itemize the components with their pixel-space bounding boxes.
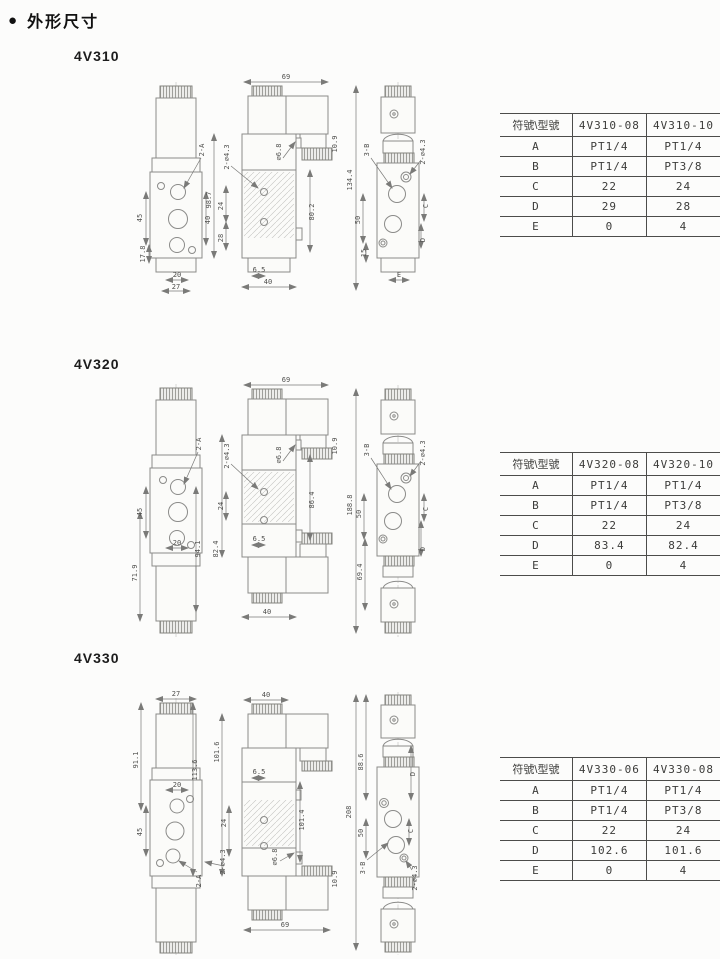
dim-label: 28 — [217, 234, 225, 242]
dim-label: 69 — [281, 921, 289, 929]
drawing-4v330-front-view: 27 91.1 45 20 113.6 2-A — [132, 690, 203, 955]
spec-cell: 22 — [572, 821, 646, 841]
spec-cell: 4 — [646, 217, 720, 237]
hole-label: 2-∅4.3 — [419, 139, 427, 164]
dim-label: 50 — [354, 216, 362, 224]
hole-label: 2-∅4.3 — [411, 865, 419, 890]
table-row: C2224 — [500, 177, 720, 197]
table-row: D83.482.4 — [500, 536, 720, 556]
dim-label: 6.5 — [253, 535, 266, 543]
dim-label: 113.6 — [191, 759, 199, 780]
spec-cell: 22 — [572, 516, 646, 536]
dim-label: 45 — [136, 214, 144, 222]
dim-label: 6.5 — [253, 768, 266, 776]
port-label: 3-B — [363, 444, 371, 457]
table-row: E04 — [500, 556, 720, 576]
dim-label: 101.4 — [298, 809, 306, 830]
dim-label: 6.5 — [253, 266, 266, 274]
spec-cell: 29 — [572, 197, 646, 217]
dim-label: 24 — [220, 819, 228, 827]
dim-label: 69.4 — [356, 564, 364, 581]
table-row: E04 — [500, 861, 720, 881]
catalog-page: ● 外形尺寸 4V310 4V320 4V330 — [0, 0, 720, 959]
drawing-4v330-side-view: 40 101.6 24 2-∅4.3 6.5 101.4 ∅6.8 10.9 6… — [205, 691, 339, 930]
spec-col-header: 4V320-10 — [646, 453, 720, 476]
spec-col-header: 4V330-06 — [572, 758, 646, 781]
dim-label: 50 — [355, 510, 363, 518]
dim-label: D — [419, 547, 427, 551]
spec-cell: E — [500, 217, 572, 237]
spec-cell: A — [500, 137, 572, 157]
dim-label: 24 — [217, 502, 225, 510]
hole-label: 2-∅4.3 — [419, 440, 427, 465]
spec-col-header: 4V310-10 — [646, 114, 720, 137]
drawing-4v310-front-din-view: 134.4 3-B 2-∅4.3 50 15 C D E — [346, 82, 430, 290]
spec-cell: 28 — [646, 197, 720, 217]
spec-table-4v330: 符號\型號 4V330-06 4V330-08 APT1/4PT1/4 BPT1… — [500, 757, 720, 881]
drawing-4v310-side-view: 69 2-∅4.3 98.7 24 28 ∅6.8 10.9 80.2 6.5 … — [205, 73, 339, 287]
dim-label: 24 — [217, 202, 225, 210]
spec-cell: 0 — [572, 556, 646, 576]
dim-label: 40 — [262, 691, 270, 699]
spec-cell: PT3/8 — [646, 801, 720, 821]
dim-label: 10.9 — [331, 871, 339, 888]
table-header-row: 符號\型號 4V330-06 4V330-08 — [500, 758, 720, 781]
spec-cell: PT3/8 — [646, 157, 720, 177]
dim-label: 10.9 — [331, 438, 339, 455]
dim-label: 20 — [173, 539, 181, 547]
spec-cell: 0 — [572, 861, 646, 881]
dim-label: ∅6.8 — [275, 447, 283, 464]
dim-label: 27 — [172, 690, 180, 698]
spec-cell: C — [500, 516, 572, 536]
spec-cell: PT1/4 — [646, 476, 720, 496]
port-label: 3-B — [363, 144, 371, 157]
dim-label: 71.9 — [131, 565, 139, 582]
spec-cell: B — [500, 496, 572, 516]
spec-cell: PT1/4 — [646, 137, 720, 157]
spec-col-header: 符號\型號 — [500, 758, 572, 781]
table-header-row: 符號\型號 4V310-08 4V310-10 — [500, 114, 720, 137]
spec-cell: PT1/4 — [572, 781, 646, 801]
spec-table-4v320: 符號\型號 4V320-08 4V320-10 APT1/4PT1/4 BPT1… — [500, 452, 720, 576]
spec-cell: PT1/4 — [572, 801, 646, 821]
spec-cell: 83.4 — [572, 536, 646, 556]
spec-cell: 4 — [646, 556, 720, 576]
spec-cell: A — [500, 781, 572, 801]
spec-col-header: 符號\型號 — [500, 453, 572, 476]
dim-label: ∅6.8 — [271, 849, 279, 866]
dim-label: 94.1 — [194, 541, 202, 558]
spec-col-header: 符號\型號 — [500, 114, 572, 137]
dim-label: 17.8 — [139, 246, 147, 263]
dim-label: C — [422, 507, 430, 511]
table-row: D2928 — [500, 197, 720, 217]
dim-label: 88.6 — [357, 754, 365, 771]
dim-label: 10.9 — [331, 136, 339, 153]
dim-label: 208 — [345, 806, 353, 819]
spec-cell: 24 — [646, 821, 720, 841]
table-row: BPT1/4PT3/8 — [500, 801, 720, 821]
spec-table-4v310: 符號\型號 4V310-08 4V310-10 APT1/4PT1/4 BPT1… — [500, 113, 720, 237]
spec-cell: 0 — [572, 217, 646, 237]
dim-label: D — [419, 238, 427, 242]
port-label: 2-A — [198, 143, 206, 156]
table-row: APT1/4PT1/4 — [500, 781, 720, 801]
dim-label: 45 — [136, 508, 144, 516]
spec-cell: D — [500, 841, 572, 861]
dim-label: 134.4 — [346, 169, 354, 190]
table-row: E04 — [500, 217, 720, 237]
dim-label: 80.2 — [308, 204, 316, 221]
dim-label: E — [397, 271, 401, 279]
dim-label: 86.4 — [308, 492, 316, 509]
spec-cell: 102.6 — [572, 841, 646, 861]
dim-label: 188.8 — [346, 494, 354, 515]
table-row: APT1/4PT1/4 — [500, 476, 720, 496]
spec-cell: PT1/4 — [646, 781, 720, 801]
spec-cell: PT1/4 — [572, 157, 646, 177]
spec-cell: PT3/8 — [646, 496, 720, 516]
dim-label: C — [407, 829, 415, 833]
dim-label: 45 — [136, 828, 144, 836]
spec-cell: C — [500, 177, 572, 197]
table-row: C2224 — [500, 821, 720, 841]
spec-cell: 22 — [572, 177, 646, 197]
spec-cell: B — [500, 157, 572, 177]
dim-label: 20 — [173, 781, 181, 789]
hole-label: 2-∅4.3 — [223, 144, 231, 169]
table-row: C2224 — [500, 516, 720, 536]
spec-cell: C — [500, 821, 572, 841]
spec-cell: 24 — [646, 177, 720, 197]
spec-cell: D — [500, 536, 572, 556]
spec-cell: A — [500, 476, 572, 496]
dim-label: D — [409, 772, 417, 776]
spec-cell: PT1/4 — [572, 476, 646, 496]
dim-label: 40 — [204, 216, 212, 224]
dim-label: 40 — [263, 608, 271, 616]
dim-label: 69 — [282, 73, 290, 81]
port-label: 2-A — [195, 874, 203, 887]
spec-col-header: 4V310-08 — [572, 114, 646, 137]
dim-label: 40 — [264, 278, 272, 286]
spec-cell: PT1/4 — [572, 496, 646, 516]
drawing-4v330-front-din-view: 208 88.6 50 D C 3-B 2-∅4.3 — [345, 692, 419, 955]
spec-cell: B — [500, 801, 572, 821]
spec-cell: 24 — [646, 516, 720, 536]
dim-label: 27 — [172, 283, 180, 291]
drawing-4v310-front-view: 45 17.8 20 27 40 2-A — [136, 82, 212, 291]
spec-cell: 82.4 — [646, 536, 720, 556]
dim-label: 69 — [282, 376, 290, 384]
dim-label: C — [422, 204, 430, 208]
dim-label: ∅6.8 — [275, 144, 283, 161]
drawing-4v320-front-din-view: 188.8 3-B 2-∅4.3 50 69.4 C D — [346, 385, 430, 637]
table-row: BPT1/4PT3/8 — [500, 496, 720, 516]
spec-cell: D — [500, 197, 572, 217]
spec-cell: PT1/4 — [572, 137, 646, 157]
dim-label: 50 — [357, 829, 365, 837]
dim-label: 98.7 — [205, 192, 213, 209]
port-label: 2-A — [195, 437, 203, 450]
port-label: 3-B — [359, 862, 367, 875]
hole-label: 2-∅4.3 — [223, 443, 231, 468]
spec-col-header: 4V320-08 — [572, 453, 646, 476]
spec-cell: 101.6 — [646, 841, 720, 861]
dim-label: 15 — [360, 249, 368, 257]
spec-cell: E — [500, 556, 572, 576]
table-row: APT1/4PT1/4 — [500, 137, 720, 157]
dim-label: 101.6 — [213, 741, 221, 762]
dim-label: 91.1 — [132, 752, 140, 769]
spec-col-header: 4V330-08 — [646, 758, 720, 781]
table-row: D102.6101.6 — [500, 841, 720, 861]
spec-cell: E — [500, 861, 572, 881]
dim-label: 82.4 — [212, 541, 220, 558]
drawing-4v320-front-view: 45 71.9 20 94.1 2-A — [131, 384, 203, 637]
table-header-row: 符號\型號 4V320-08 4V320-10 — [500, 453, 720, 476]
hole-label: 2-∅4.3 — [219, 849, 227, 874]
drawing-4v320-side-view: 69 2-∅4.3 24 82.4 ∅6.8 10.9 86.4 6.5 40 — [212, 376, 339, 617]
dim-label: 20 — [173, 271, 181, 279]
table-row: BPT1/4PT3/8 — [500, 157, 720, 177]
spec-cell: 4 — [646, 861, 720, 881]
